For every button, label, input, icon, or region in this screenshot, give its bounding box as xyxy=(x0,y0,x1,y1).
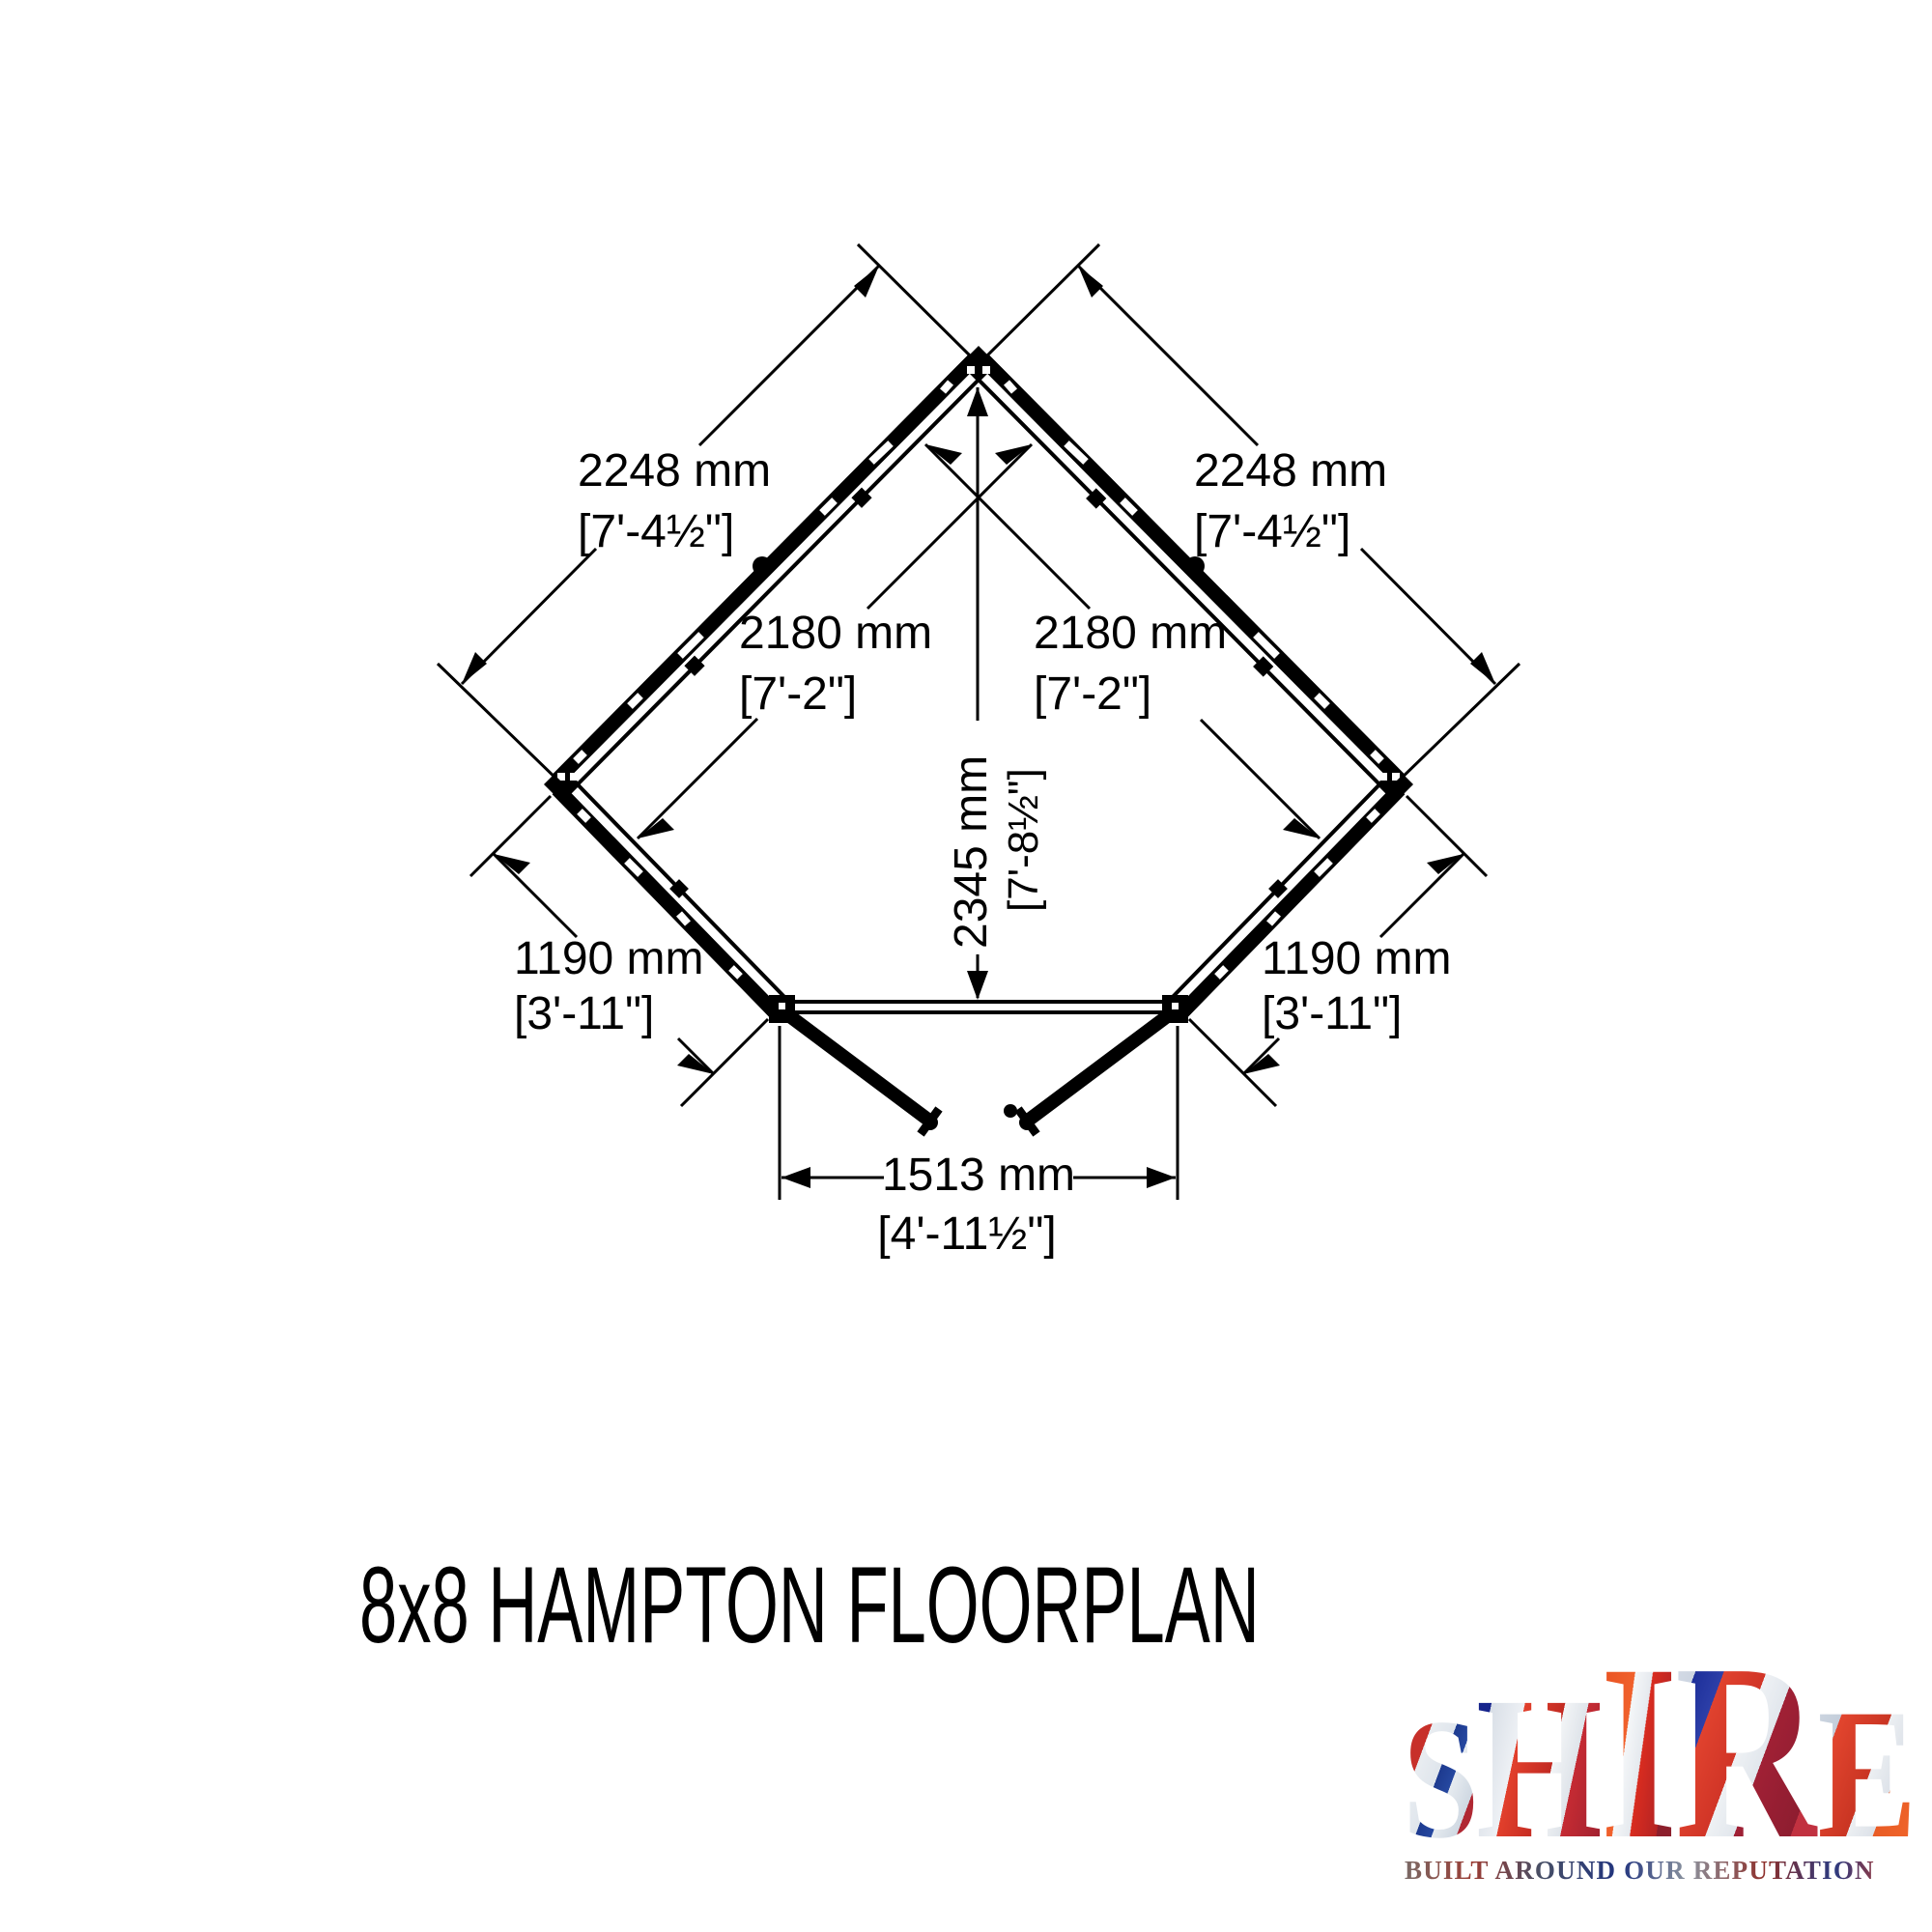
door-leaf-left xyxy=(787,1014,929,1121)
dim-door-opening-metric: 1513 mm xyxy=(882,1150,1075,1201)
dim-internal-right-imperial: [7'-2"] xyxy=(1034,668,1151,720)
dim-front-wall-right-metric: 1190 mm xyxy=(1262,933,1452,984)
floorplan-page: 2248 mm [7'-4½"] 2248 mm [7'-4½"] 2180 m… xyxy=(0,0,1932,1932)
wall-upper-left-inner xyxy=(570,372,986,792)
dim-front-wall-left-imperial: [3'-11"] xyxy=(514,988,654,1039)
logo-letter: I xyxy=(1600,1627,1675,1878)
shire-logo-wordmark: S H I R E xyxy=(1403,1626,1914,1878)
logo-letter: S xyxy=(1403,1692,1476,1864)
dim-front-wall-left-metric: 1190 mm xyxy=(514,933,704,984)
door-handle-right xyxy=(1004,1104,1037,1134)
dim-internal-right-metric: 2180 mm xyxy=(1034,608,1227,659)
logo-tagline: BUILT AROUND OUR REPUTATION xyxy=(1405,1856,1892,1886)
shire-logo: S H I R E BUILT AROUND OUR REPUTATION xyxy=(1403,0,1905,290)
door-leaf-right xyxy=(1028,1014,1170,1121)
dim-side-wall-left-imperial: [7'-4½"] xyxy=(578,506,734,557)
dim-side-wall-right-metric: 2248 mm xyxy=(1194,445,1387,497)
dim-depth-metric: 2345 mm xyxy=(946,755,997,949)
dim-depth-imperial: [7'-8½"] xyxy=(1000,768,1047,912)
wall-upper-right-inner xyxy=(971,372,1387,792)
logo-letter: R xyxy=(1675,1626,1818,1878)
logo-letter: E xyxy=(1817,1681,1914,1867)
dim-side-wall-left-metric: 2248 mm xyxy=(578,445,771,497)
logo-letter: H xyxy=(1476,1666,1600,1870)
dim-side-wall-right-imperial: [7'-4½"] xyxy=(1194,506,1350,557)
dim-door-opening-imperial: [4'-11½"] xyxy=(877,1208,1056,1260)
drawing-title: 8x8 HAMPTON FLOORPLAN xyxy=(359,1544,1260,1665)
dim-internal-left-metric: 2180 mm xyxy=(739,608,932,659)
door-assembly xyxy=(769,995,1188,1134)
dim-internal-left-imperial: [7'-2"] xyxy=(739,668,857,720)
dim-front-wall-right-imperial: [3'-11"] xyxy=(1262,988,1402,1039)
